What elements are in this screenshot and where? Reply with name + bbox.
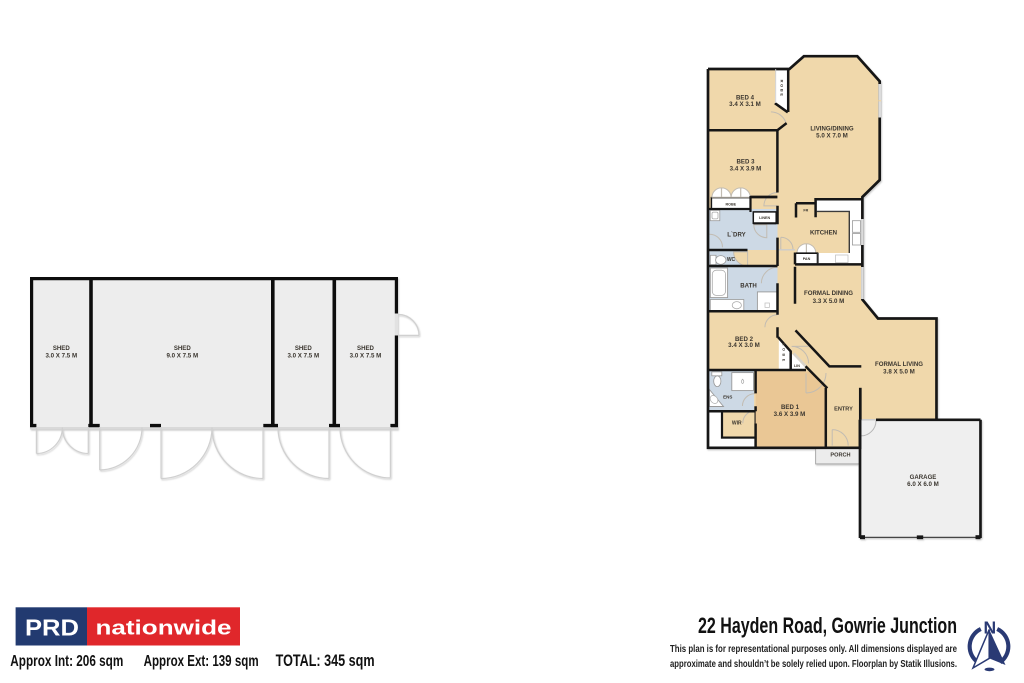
svg-text:3.4 X 3.1 M: 3.4 X 3.1 M: [729, 101, 761, 108]
svg-text:FR: FR: [803, 209, 808, 213]
svg-text:ROBE: ROBE: [725, 203, 736, 207]
svg-text:LIN: LIN: [794, 364, 800, 368]
svg-text:N: N: [983, 617, 996, 637]
svg-text:GARAGE: GARAGE: [910, 474, 937, 481]
svg-text:BED 1: BED 1: [781, 404, 800, 411]
svg-text:3.0 X 7.5 M: 3.0 X 7.5 M: [350, 353, 382, 360]
svg-text:ENS: ENS: [723, 394, 732, 399]
svg-text:ENTRY: ENTRY: [834, 406, 853, 412]
svg-text:SHED: SHED: [174, 345, 192, 352]
svg-text:nationwide: nationwide: [96, 617, 232, 639]
svg-text:PORCH: PORCH: [830, 452, 850, 458]
svg-text:5.0 X 7.0 M: 5.0 X 7.0 M: [816, 132, 848, 139]
svg-text:PRD: PRD: [25, 614, 79, 640]
svg-text:WIR: WIR: [732, 421, 742, 427]
svg-text:FORMAL DINING: FORMAL DINING: [804, 290, 853, 297]
svg-text:ROBE: ROBE: [780, 80, 785, 98]
svg-text:3.4 X 3.0 M: 3.4 X 3.0 M: [728, 342, 760, 349]
svg-text:SHED: SHED: [53, 345, 71, 352]
svg-text:22 Hayden Road, Gowrie Junctio: 22 Hayden Road, Gowrie Junction: [698, 613, 957, 638]
svg-text:BATH: BATH: [740, 283, 756, 290]
svg-text:SHED: SHED: [295, 345, 313, 352]
svg-text:SHED: SHED: [357, 345, 375, 352]
svg-text:9.0 X 7.5 M: 9.0 X 7.5 M: [166, 353, 198, 360]
svg-text:3.0 X 7.5 M: 3.0 X 7.5 M: [45, 353, 77, 360]
svg-text:6.0 X 6.0 M: 6.0 X 6.0 M: [907, 481, 939, 488]
svg-text:Approx Int: 206 sqm: Approx Int: 206 sqm: [10, 653, 123, 670]
svg-text:approximate and shouldn’t be s: approximate and shouldn’t be solely reli…: [670, 659, 957, 670]
svg-text:3.0 X 7.5 M: 3.0 X 7.5 M: [287, 353, 319, 360]
svg-text:Approx Ext: 139 sqm: Approx Ext: 139 sqm: [144, 653, 259, 670]
svg-text:ROBE: ROBE: [782, 343, 786, 364]
svg-text:KITCHEN: KITCHEN: [810, 230, 837, 237]
svg-text:3.3 X 5.0 M: 3.3 X 5.0 M: [813, 298, 845, 305]
svg-text:This plan is for representatio: This plan is for representational purpos…: [670, 644, 957, 655]
svg-text:PAN: PAN: [803, 257, 811, 261]
svg-text:LINEN: LINEN: [759, 216, 770, 220]
svg-text:FORMAL LIVING: FORMAL LIVING: [875, 361, 923, 368]
svg-text:WC: WC: [727, 257, 736, 263]
svg-text:3.8 X 5.0 M: 3.8 X 5.0 M: [883, 369, 915, 376]
svg-text:3.4 X 3.9 M: 3.4 X 3.9 M: [730, 165, 762, 172]
svg-text:3.6 X 3.9 M: 3.6 X 3.9 M: [774, 411, 806, 418]
svg-text:L`DRY: L`DRY: [727, 232, 745, 239]
svg-text:TOTAL: 345 sqm: TOTAL: 345 sqm: [276, 652, 375, 670]
svg-text:LIVING/DINING: LIVING/DINING: [810, 125, 854, 132]
